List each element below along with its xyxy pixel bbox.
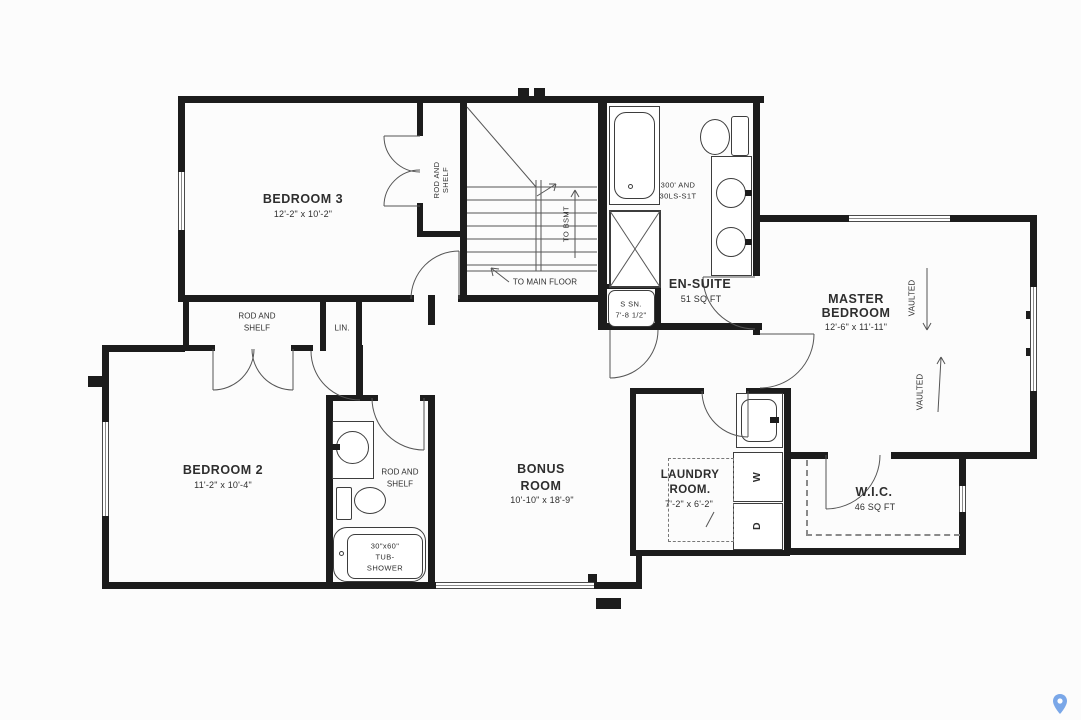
ensuite-fixture-note-line2: 30LS-S1T [660, 192, 697, 201]
bedroom2-label: BEDROOM 2 [183, 463, 263, 477]
bathroom-sink [336, 431, 369, 464]
wall-segment [102, 345, 109, 422]
bonus-room-dims: 10'-10" x 18'-9" [510, 495, 574, 505]
ensuite-sink-2 [716, 227, 746, 257]
wall-segment [753, 96, 760, 276]
bedroom2-closet-line2: SHELF [244, 324, 270, 333]
wall-segment [178, 230, 185, 302]
wall-segment [630, 388, 704, 394]
master-bedroom-label-line1: MASTER [828, 292, 884, 306]
small-closet-label-box [608, 290, 655, 327]
wall-segment [320, 295, 326, 351]
wall-segment [655, 284, 661, 330]
stairs-to-bsmt-label: TO BSMT [562, 206, 571, 242]
ensuite-fixture-note-line1: 300' AND [661, 181, 696, 190]
ensuite-faucet-1 [745, 190, 752, 196]
wall-segment [636, 550, 642, 589]
wic-rod-dashed-horizontal [806, 534, 960, 536]
ensuite-tub-drain [628, 184, 633, 189]
wall-segment [1030, 215, 1037, 287]
wall-segment [950, 215, 1037, 222]
tub-label-line3: SHOWER [367, 564, 403, 573]
wall-segment [183, 345, 215, 351]
plan-linework [0, 0, 1081, 720]
window-symbol [178, 172, 185, 230]
wall-segment [178, 96, 185, 172]
wic-label: W.I.C. [855, 485, 892, 499]
wall-segment [959, 452, 966, 486]
wall-segment [356, 345, 363, 401]
bathroom-note-line1: ROD AND [381, 468, 418, 477]
ensuite-sink-1 [716, 178, 746, 208]
wall-segment [183, 295, 189, 351]
master-bedroom-label-line2: BEDROOM [822, 306, 891, 320]
laundry-dims: 7'-2" x 6'-2" [665, 499, 713, 509]
wall-segment [460, 96, 467, 302]
wic-area: 46 SQ FT [855, 502, 896, 512]
wall-segment [178, 295, 414, 302]
stairs-to-main-floor-label: TO MAIN FLOOR [513, 278, 577, 287]
ensuite-vanity [711, 156, 752, 276]
laundry-label-line2: ROOM. [670, 484, 711, 496]
wall-segment [417, 103, 423, 136]
wall-segment [88, 376, 103, 387]
wall-segment [1030, 391, 1037, 459]
wall-segment [534, 88, 545, 97]
ensuite-faucet-2 [745, 239, 752, 245]
wic-rod-dashed-vertical [806, 460, 808, 536]
vaulted-label-2: VAULTED [916, 374, 925, 410]
small-closet-line1: S SN. [620, 300, 642, 309]
wall-segment [518, 88, 529, 97]
ensuite-toilet-tank [731, 116, 749, 156]
wall-segment [891, 452, 965, 459]
linen-closet-label: LIN. [334, 324, 349, 333]
bedroom3-closet-line2: SHELF [441, 162, 450, 199]
bonus-room-label-line2: ROOM [521, 479, 562, 493]
wall-segment [428, 395, 435, 589]
washer-label: W [751, 472, 763, 482]
bedroom3-closet-label: ROD AND SHELF [432, 162, 450, 199]
wall-segment [291, 345, 313, 351]
bedroom3-dims: 12'-2" x 10'-2" [274, 209, 332, 219]
laundry-label-line1: LAUNDRY [661, 469, 720, 481]
laundry-faucet [770, 417, 779, 423]
bathroom-faucet [332, 444, 340, 450]
wall-segment [786, 548, 966, 555]
wall-segment [963, 452, 1037, 459]
wall-segment [356, 295, 362, 351]
bonus-room-label-line1: BONUS [517, 462, 565, 476]
small-closet-line2: 7'-8 1/2" [615, 311, 646, 320]
vaulted-label-1: VAULTED [908, 280, 917, 316]
wall-segment [784, 388, 791, 555]
wall-segment [630, 550, 790, 556]
window-symbol [436, 582, 594, 589]
wall-segment [602, 284, 607, 330]
tub-label-line2: TUB- [375, 553, 394, 562]
ensuite-bathtub-basin [614, 112, 655, 199]
window-symbol [102, 422, 109, 516]
wall-segment [786, 452, 828, 459]
wall-segment [458, 295, 607, 302]
wall-segment [102, 345, 185, 352]
floor-plan: BEDROOM 3 12'-2" x 10'-2" ROD AND SHELF … [0, 0, 1081, 720]
master-bedroom-dims: 12'-6" x 11'-11" [825, 322, 887, 332]
wall-segment [102, 516, 109, 589]
tub-size-label: 30"x60" [371, 542, 400, 551]
bedroom3-closet-line1: ROD AND [432, 162, 441, 199]
dryer-label: D [751, 522, 763, 530]
wall-segment [326, 395, 378, 401]
wall-segment [428, 295, 435, 325]
bathroom-note-line2: SHELF [387, 480, 413, 489]
wall-segment [596, 598, 621, 609]
wall-segment [102, 582, 436, 589]
bedroom3-label: BEDROOM 3 [263, 192, 343, 206]
ensuite-shower [609, 210, 661, 288]
wall-segment [757, 215, 851, 222]
bedroom2-closet-line1: ROD AND [238, 312, 275, 321]
ensuite-toilet-bowl [700, 119, 730, 155]
window-symbol [849, 215, 950, 222]
ensuite-area: 51 SQ FT [681, 294, 722, 304]
window-symbol [959, 486, 966, 512]
window-symbol [1030, 287, 1037, 391]
bathroom-toilet-tank [336, 487, 352, 520]
wall-segment [594, 582, 642, 589]
wall-segment [178, 96, 764, 103]
location-pin-icon [1050, 692, 1070, 716]
wall-segment [630, 388, 636, 556]
bathroom-toilet-bowl [354, 487, 386, 514]
bedroom2-dims: 11'-2" x 10'-4" [194, 480, 252, 490]
bathroom-tub-faucet [339, 551, 344, 556]
ensuite-label: EN-SUITE [669, 277, 731, 291]
